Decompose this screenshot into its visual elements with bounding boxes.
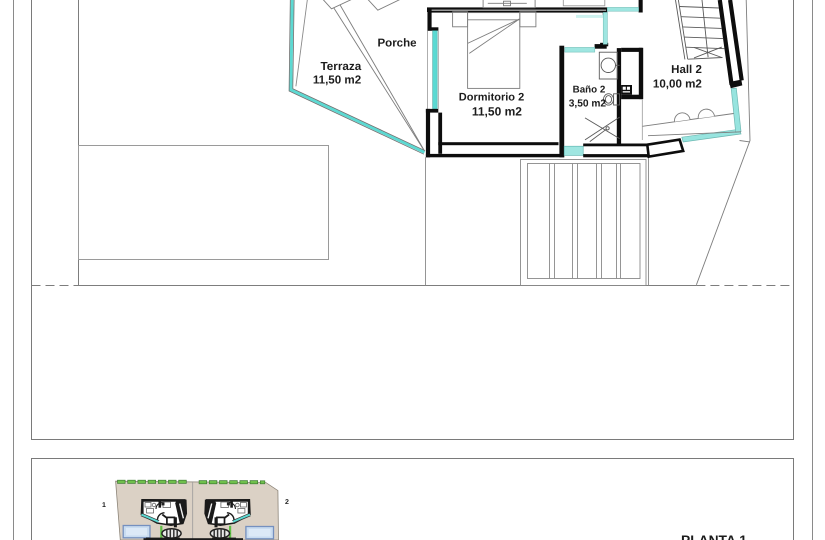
svg-text:2: 2 bbox=[285, 499, 289, 506]
svg-text:Dormitorio 2: Dormitorio 2 bbox=[459, 92, 524, 104]
svg-text:10,00 m2: 10,00 m2 bbox=[653, 78, 702, 91]
svg-text:3,50 m2: 3,50 m2 bbox=[569, 99, 607, 110]
svg-text:Terraza: Terraza bbox=[321, 60, 362, 73]
svg-text:PLANTA 1: PLANTA 1 bbox=[681, 533, 747, 540]
svg-text:Porche: Porche bbox=[378, 38, 417, 50]
svg-text:11,50 m2: 11,50 m2 bbox=[472, 105, 522, 119]
svg-text:Baño 2: Baño 2 bbox=[573, 85, 606, 96]
svg-text:Hall 2: Hall 2 bbox=[671, 64, 702, 76]
svg-text:11,50 m2: 11,50 m2 bbox=[313, 73, 361, 86]
svg-text:1: 1 bbox=[102, 502, 106, 509]
